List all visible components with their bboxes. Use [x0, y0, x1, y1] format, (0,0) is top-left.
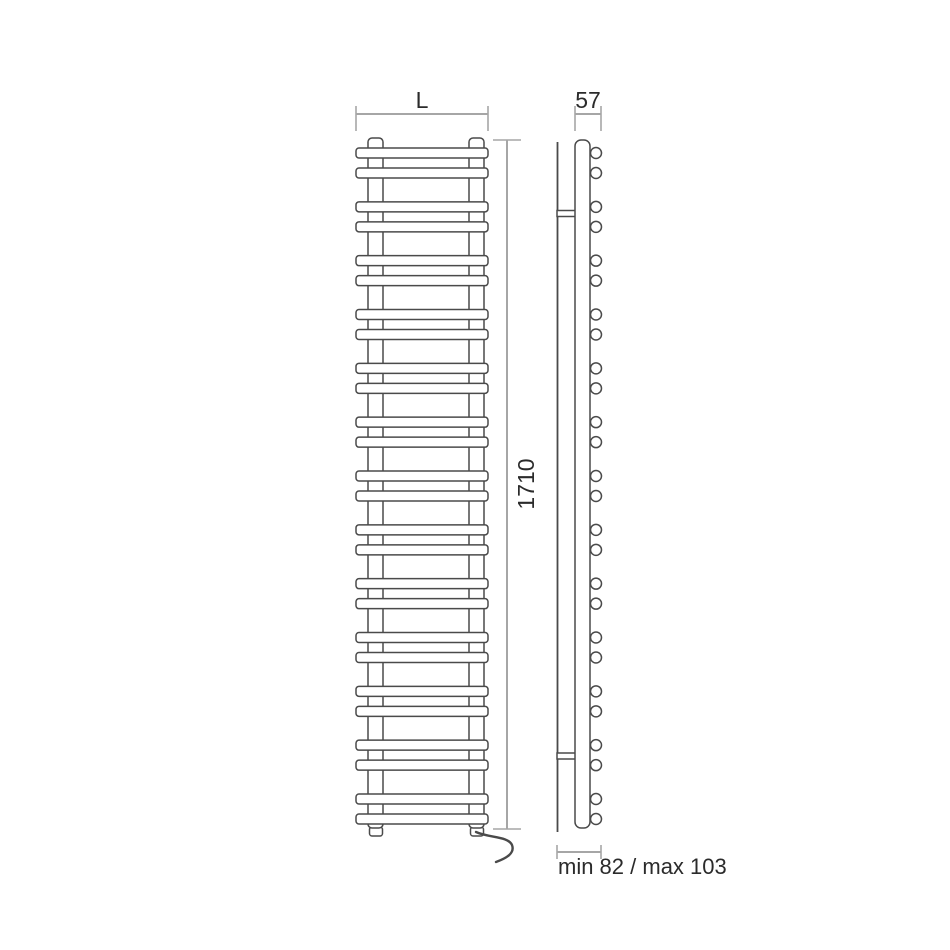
bar-end-tube [591, 652, 602, 663]
towel-bar [356, 686, 488, 696]
bar-end-tube [591, 275, 602, 286]
towel-bar [356, 329, 488, 339]
technical-drawing: L 57 1710 min 82 / max 103 [0, 0, 950, 950]
bar-end-tube [591, 329, 602, 340]
towel-bar [356, 814, 488, 824]
bar-end-tube [591, 578, 602, 589]
towel-bar [356, 309, 488, 319]
towel-bar [356, 579, 488, 589]
bar-end-tube [591, 168, 602, 179]
bar-end-tube [591, 470, 602, 481]
bar-end-tube [591, 383, 602, 394]
bar-end-tube [591, 632, 602, 643]
towel-bar [356, 256, 488, 266]
towel-bar [356, 363, 488, 373]
height-dimension-label: 1710 [513, 458, 539, 509]
towel-bar [356, 202, 488, 212]
collector-rail [368, 138, 383, 828]
bar-end-tube [591, 740, 602, 751]
mounting-bracket [557, 753, 576, 759]
bar-end-tube [591, 706, 602, 717]
towel-bar [356, 632, 488, 642]
towel-bar [356, 706, 488, 716]
towel-bar [356, 599, 488, 609]
towel-bar [356, 222, 488, 232]
towel-bar [356, 740, 488, 750]
towel-bar [356, 471, 488, 481]
towel-bar [356, 148, 488, 158]
wall-distance-dimension-label: min 82 / max 103 [558, 854, 727, 879]
bar-end-tube [591, 309, 602, 320]
towel-bar [356, 545, 488, 555]
towel-bar [356, 491, 488, 501]
side-view [557, 140, 602, 832]
towel-bar [356, 168, 488, 178]
towel-bar [356, 276, 488, 286]
towel-bar [356, 525, 488, 535]
bar-end-tube [591, 760, 602, 771]
towel-bar [356, 383, 488, 393]
bar-end-tube [591, 490, 602, 501]
mounting-bracket [557, 211, 576, 217]
bar-end-tube [591, 544, 602, 555]
radiator-technical-drawing-page: L 57 1710 min 82 / max 103 [0, 0, 950, 950]
bar-end-tube [591, 363, 602, 374]
towel-bar [356, 417, 488, 427]
bar-end-tube [591, 793, 602, 804]
collector-rail [469, 138, 484, 828]
bar-end-tube [591, 524, 602, 535]
towel-bar [356, 437, 488, 447]
bar-end-tube [591, 686, 602, 697]
towel-bar [356, 794, 488, 804]
bar-end-tube [591, 221, 602, 232]
bar-end-tube [591, 148, 602, 159]
width-dimension-label: L [416, 87, 429, 113]
bar-end-tube [591, 201, 602, 212]
bar-end-tube [591, 598, 602, 609]
towel-bar [356, 652, 488, 662]
depth-dimension-label: 57 [575, 87, 601, 113]
side-collector-panel [575, 140, 590, 828]
bar-end-tube [591, 813, 602, 824]
bar-end-tube [591, 255, 602, 266]
bar-end-tube [591, 437, 602, 448]
front-view [356, 138, 513, 862]
towel-bar [356, 760, 488, 770]
bar-end-tube [591, 417, 602, 428]
